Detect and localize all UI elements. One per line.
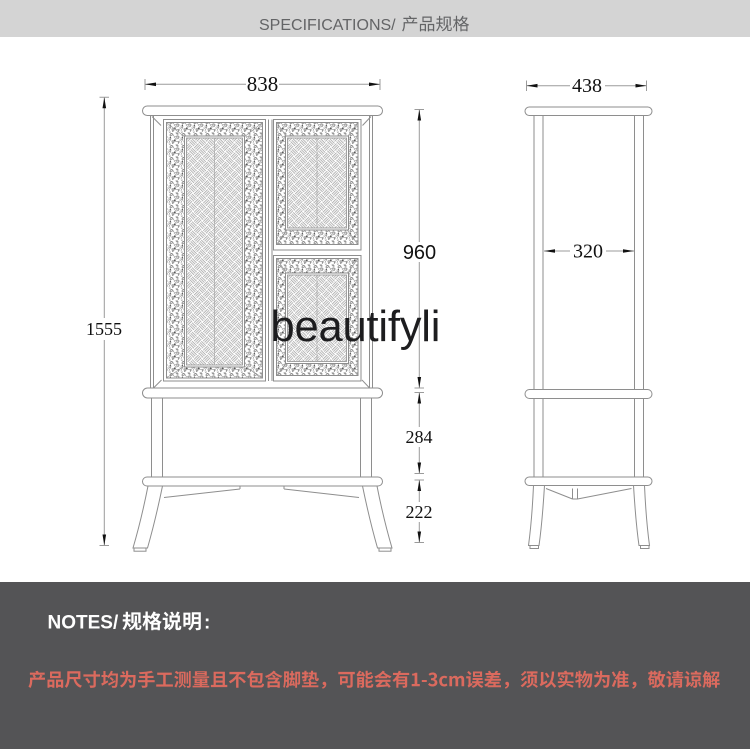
svg-text:222: 222 xyxy=(406,502,433,522)
svg-text:960: 960 xyxy=(403,242,436,264)
svg-text:1555: 1555 xyxy=(86,319,122,339)
svg-text:838: 838 xyxy=(247,72,279,96)
svg-text:NOTES/: NOTES/ xyxy=(48,613,119,634)
svg-text:beautifyli: beautifyli xyxy=(271,303,441,351)
svg-text:284: 284 xyxy=(406,427,433,447)
svg-text::: : xyxy=(204,613,210,634)
svg-text:438: 438 xyxy=(572,75,602,97)
svg-text:320: 320 xyxy=(573,241,603,263)
